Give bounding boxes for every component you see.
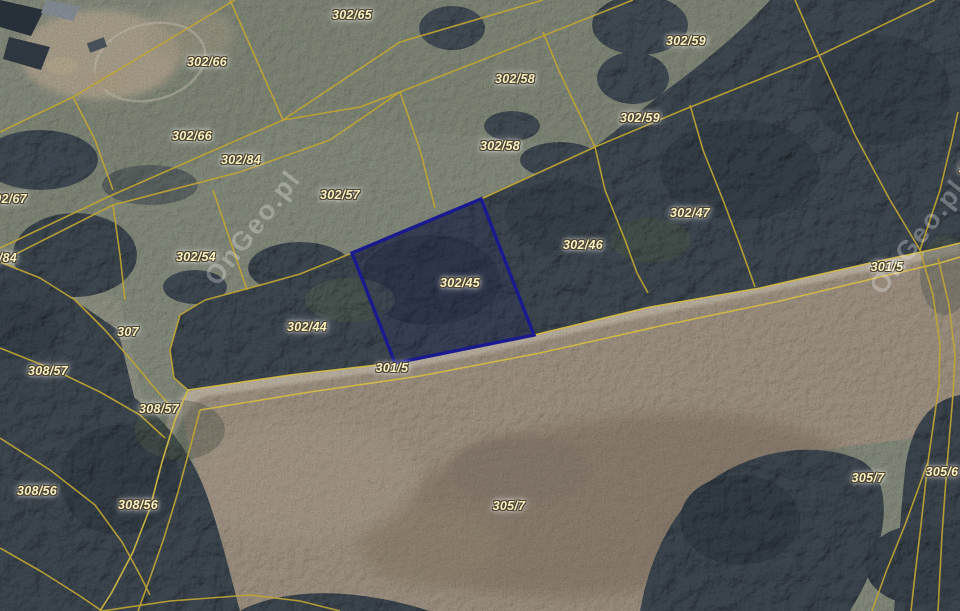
parcel-boundary-line xyxy=(543,32,595,147)
parcel-boundary-line xyxy=(595,147,648,293)
parcel-boundary-line xyxy=(0,438,150,595)
parcel-boundary-line xyxy=(283,0,543,120)
parcel-boundary-line xyxy=(188,243,960,390)
parcel-boundary-line xyxy=(0,548,102,611)
parcel-boundary-line xyxy=(113,205,125,300)
parcel-boundary-line xyxy=(0,348,165,438)
parcel-boundary-line xyxy=(400,92,435,208)
parcel-boundary-line xyxy=(938,258,955,611)
parcel-boundary-line xyxy=(213,190,247,290)
parcel-boundary-line xyxy=(283,0,633,120)
parcel-boundary-line xyxy=(200,257,960,410)
parcel-boundary-line xyxy=(920,112,958,250)
parcel-boundary-line xyxy=(911,250,940,611)
parcel-boundaries-layer xyxy=(0,0,960,611)
map-canvas[interactable]: 302/65302/59302/66302/58302/59302/66302/… xyxy=(0,0,960,611)
parcel-boundary-line xyxy=(102,595,340,611)
parcel-boundary-line xyxy=(73,97,113,190)
parcel-boundary-line xyxy=(818,53,920,250)
parcel-boundary-line xyxy=(690,105,755,287)
parcel-boundary-line xyxy=(0,92,400,262)
parcel-boundary-line xyxy=(0,120,283,248)
parcel-boundary-line xyxy=(230,0,283,120)
highlighted-parcel-302-45[interactable] xyxy=(352,199,534,363)
parcel-boundary-line xyxy=(795,0,818,53)
parcel-boundary-line xyxy=(0,0,235,132)
